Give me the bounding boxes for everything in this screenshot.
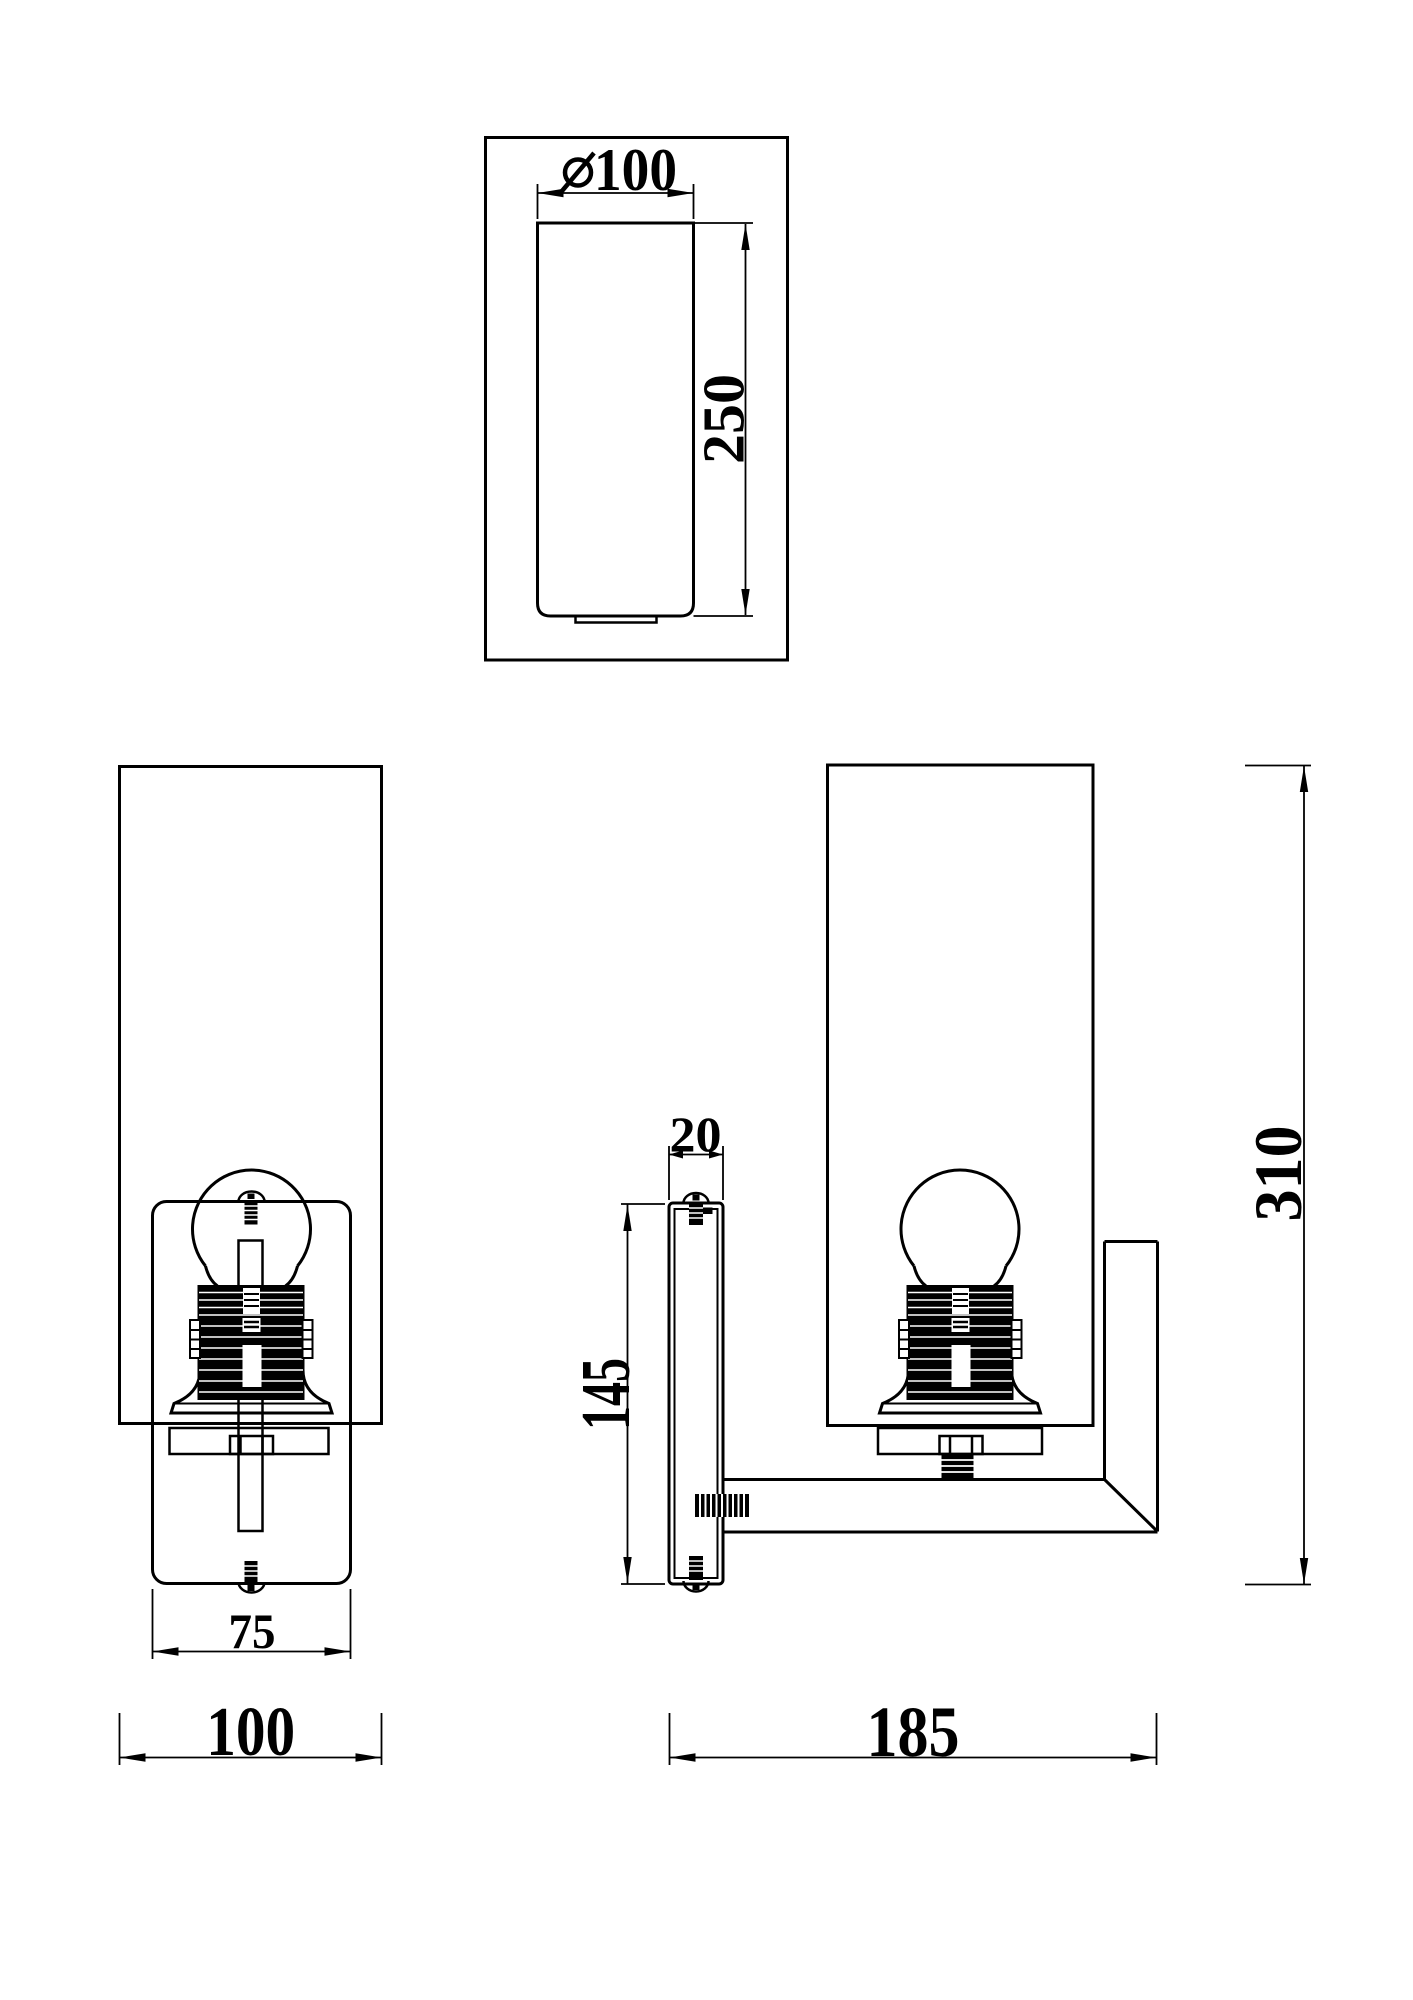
svg-text:250: 250 (691, 374, 757, 464)
svg-text:310: 310 (1240, 1126, 1316, 1222)
svg-text:145: 145 (568, 1358, 645, 1430)
svg-text:100: 100 (594, 137, 677, 203)
svg-text:75: 75 (229, 1603, 276, 1659)
svg-text:185: 185 (867, 1692, 960, 1772)
svg-text:100: 100 (206, 1694, 295, 1771)
svg-text:20: 20 (670, 1106, 722, 1162)
